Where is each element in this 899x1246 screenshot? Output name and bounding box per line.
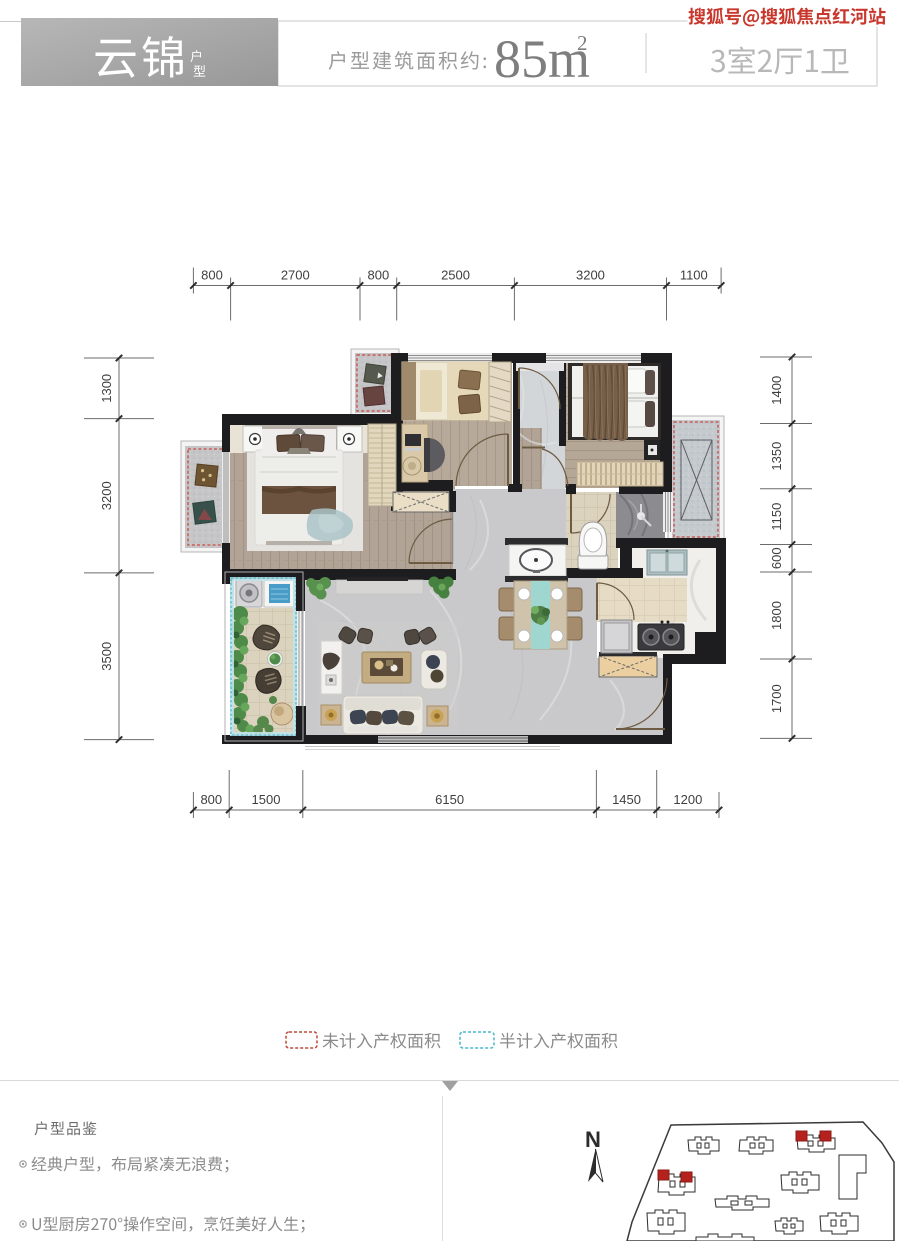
svg-text:2: 2	[577, 31, 588, 55]
svg-text:85m: 85m	[494, 29, 590, 89]
svg-text:800: 800	[367, 268, 389, 283]
svg-text:1200: 1200	[673, 792, 702, 807]
svg-text:6150: 6150	[435, 792, 464, 807]
svg-text:600: 600	[769, 547, 784, 569]
svg-text:2700: 2700	[281, 268, 310, 283]
svg-text:1300: 1300	[99, 374, 114, 403]
svg-text:3200: 3200	[576, 268, 605, 283]
svg-text:N: N	[585, 1127, 601, 1152]
svg-text:800: 800	[201, 268, 223, 283]
svg-text:2500: 2500	[441, 268, 470, 283]
svg-text:1150: 1150	[769, 503, 784, 531]
svg-text:1800: 1800	[769, 601, 784, 630]
svg-text:1700: 1700	[769, 684, 784, 713]
svg-text:3500: 3500	[99, 642, 114, 671]
svg-text:1400: 1400	[769, 376, 784, 405]
svg-text:1500: 1500	[252, 792, 281, 807]
svg-text:1350: 1350	[769, 442, 784, 471]
svg-text:3200: 3200	[99, 481, 114, 510]
svg-text:800: 800	[200, 792, 222, 807]
svg-text:1100: 1100	[680, 268, 708, 283]
svg-text:1450: 1450	[612, 792, 641, 807]
